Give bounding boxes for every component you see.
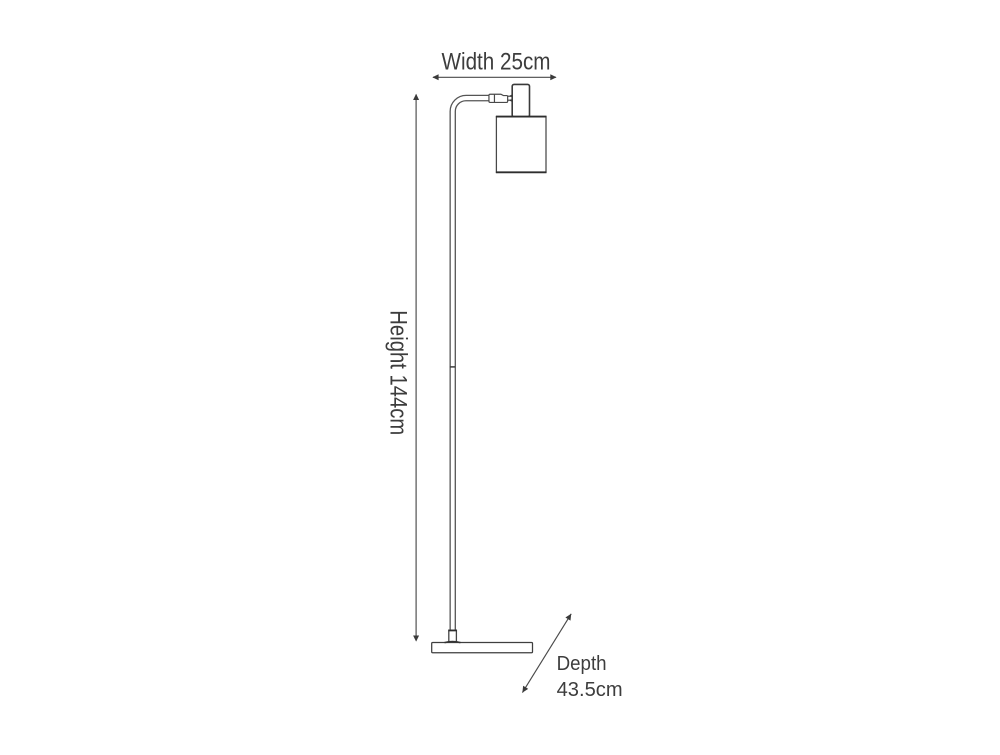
svg-text:Height 144cm: Height 144cm [384,310,411,435]
svg-text:43.5cm: 43.5cm [557,678,623,701]
svg-text:Depth: Depth [557,652,607,675]
svg-text:Width 25cm: Width 25cm [442,48,551,75]
